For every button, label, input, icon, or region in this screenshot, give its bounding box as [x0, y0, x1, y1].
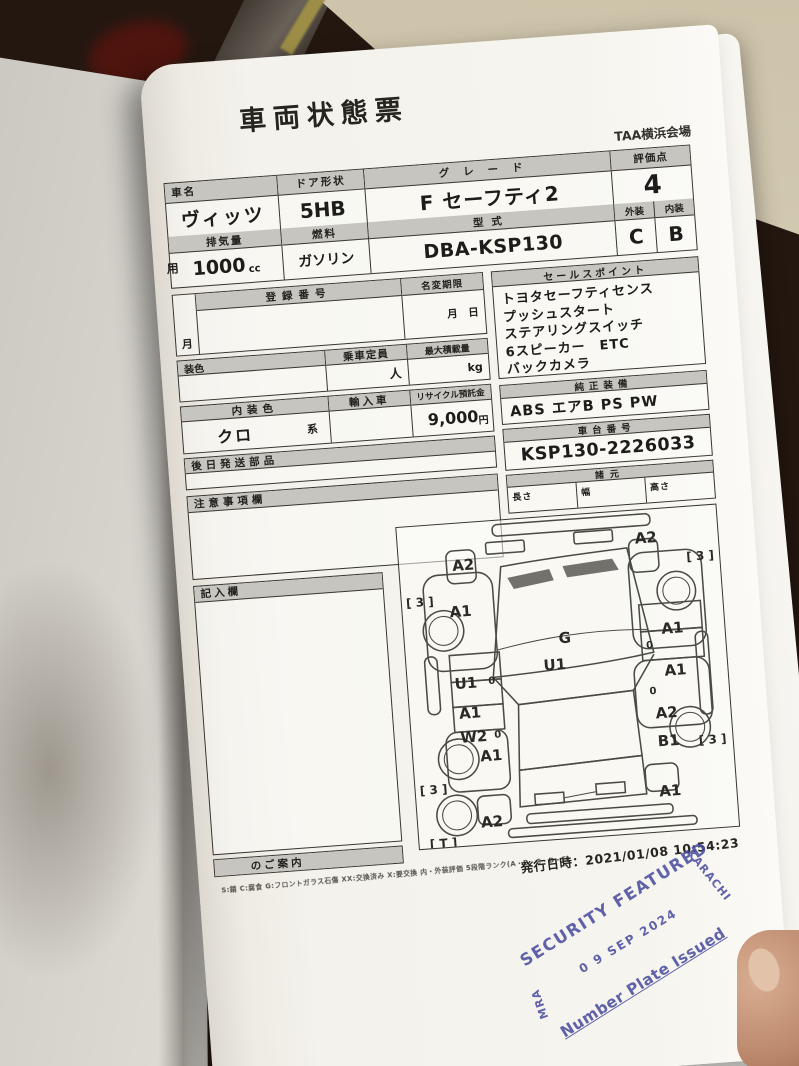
interior-color-suffix: 系: [306, 420, 318, 437]
auction-venue: TAA横浜会場: [614, 120, 692, 145]
damage-marker: 0: [646, 640, 654, 651]
damage-marker: 0: [649, 686, 657, 697]
damage-diagram-box: A2A2[ 3 ][ 3 ]A1GA1U1U100A1A1W200A2A1B1[…: [395, 504, 740, 851]
recycle-deposit-unit: 円: [478, 410, 489, 426]
damage-marker: G: [558, 629, 572, 648]
damage-marker: [ 3 ]: [406, 594, 435, 610]
entry-box: 記入欄: [193, 572, 402, 855]
spec-length-cell: 長さ: [508, 483, 578, 513]
damage-marker: [ 3 ]: [686, 548, 715, 564]
spec-height-label: 高さ: [650, 479, 671, 493]
damage-diagram: A2A2[ 3 ][ 3 ]A1GA1U1U100A1A1W200A2A1B1[…: [398, 507, 736, 847]
stamp-number-plate-issued-text: Number Plate Issued: [557, 924, 729, 1041]
recycle-deposit-value: 9,000: [427, 407, 479, 430]
sheet-form: 車名 ヴィッツ 排気量 1000 cc ドア形状 5HB 燃料 ガソリン: [163, 144, 747, 961]
damage-marker: 0: [488, 676, 496, 687]
spec-width-cell: 幅: [575, 478, 646, 508]
damage-marker: A2: [634, 528, 657, 548]
sales-points-list: トヨタセーフティセンスプッシュスタートステアリングスイッチ6スピーカー ETCバ…: [493, 272, 705, 379]
exterior-grade-value: C: [616, 218, 657, 255]
spec-width-label: 幅: [581, 485, 592, 499]
issue-datetime-label: 発行日時：: [520, 853, 586, 875]
damage-marker: 0: [494, 729, 502, 740]
max-payload-unit: kg: [408, 354, 490, 385]
stamp-mra-text: MRA: [529, 987, 551, 1020]
damage-marker: A2: [655, 703, 678, 723]
damage-marker: U1: [543, 655, 567, 675]
reg-month-partial: 月: [181, 335, 193, 352]
damage-marker: W2: [460, 727, 488, 747]
seating-capacity-unit: 人: [326, 360, 408, 391]
interior-grade-value: B: [655, 215, 697, 252]
spec-length-label: 長さ: [512, 489, 533, 503]
finger-holding-page: [737, 930, 799, 1066]
damage-marker: A2: [480, 812, 503, 832]
auction-sheet-page: 車両状態票 TAA横浜会場 車名 ヴィッツ 排気量 1000 cc: [139, 24, 793, 1066]
displacement-value: 1000: [192, 254, 246, 280]
fuel-value: ガソリン: [282, 239, 371, 279]
damage-marker: [ 3 ]: [419, 782, 448, 798]
damage-marker: A1: [659, 781, 682, 801]
damage-marker: U1: [454, 674, 478, 694]
usage-partial-label: 用: [166, 259, 179, 277]
displacement-unit: cc: [248, 263, 261, 275]
name-change-deadline-value: 月 日: [402, 290, 486, 339]
sheet-title: 車両状態票: [238, 87, 410, 138]
damage-marker: [ 3 ]: [698, 731, 727, 747]
damage-marker: A1: [458, 703, 481, 723]
spec-height-cell: 高さ: [644, 473, 715, 503]
damage-marker: B1: [657, 731, 680, 751]
damage-marker: A1: [664, 660, 687, 680]
sales-points-box: セールスポイント トヨタセーフティセンスプッシュスタートステアリングスイッチ6ス…: [491, 256, 706, 379]
damage-marker: [ T ]: [429, 835, 457, 850]
imported-car-value: [330, 406, 413, 443]
fingernail: [744, 945, 785, 996]
damage-marker: A2: [452, 555, 475, 575]
interior-color-value: クロ: [216, 421, 254, 448]
damage-marker: A1: [661, 618, 684, 638]
damage-marker: A1: [449, 602, 472, 622]
photo-of-auction-sheet: 車両状態票 TAA横浜会場 車名 ヴィッツ 排気量 1000 cc: [0, 0, 799, 1066]
damage-marker: A1: [480, 746, 503, 766]
